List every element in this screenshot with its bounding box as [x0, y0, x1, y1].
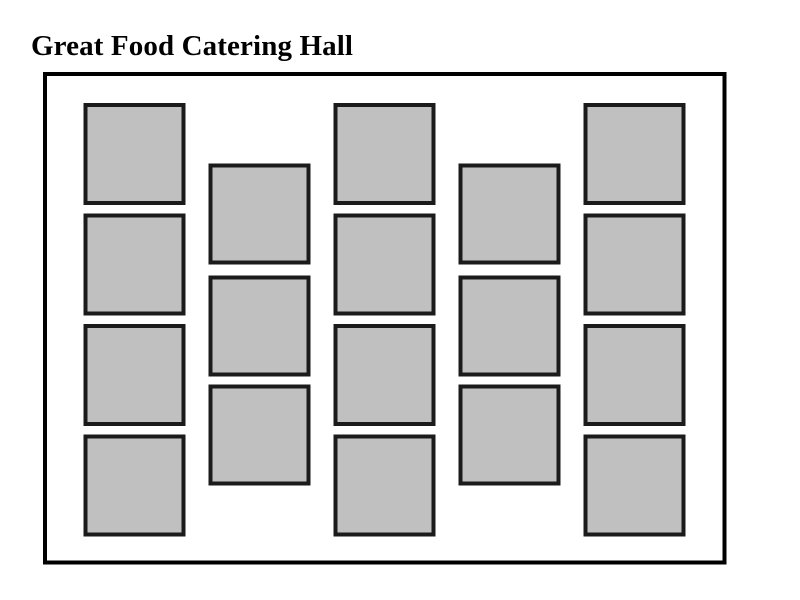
- svg-text:Great Food Catering Hall: Great Food Catering Hall: [31, 30, 353, 62]
